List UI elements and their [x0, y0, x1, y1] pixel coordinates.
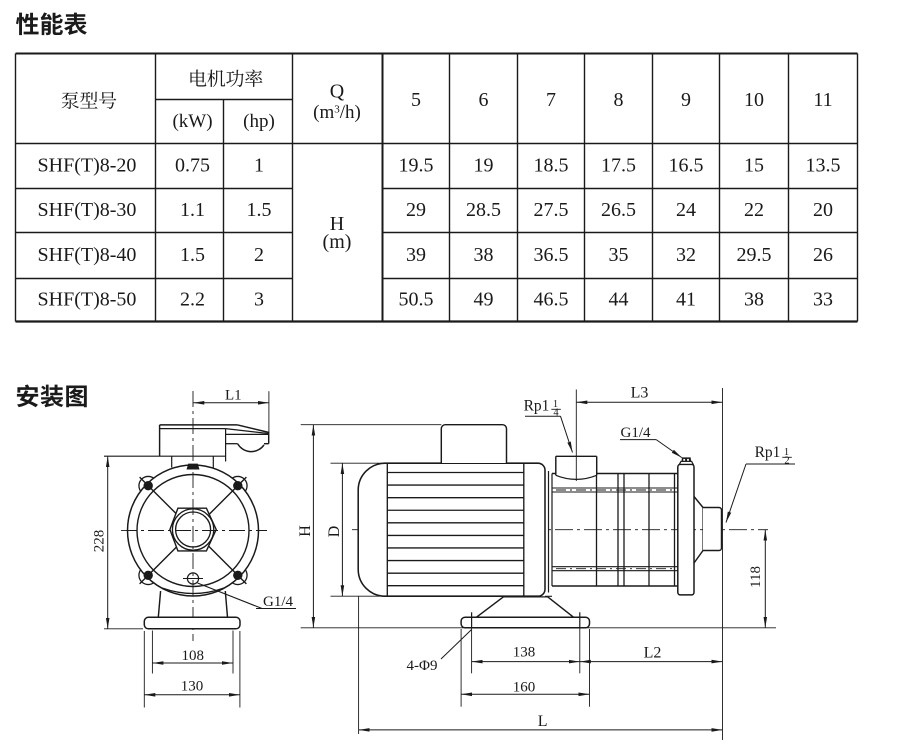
svg-text:36.5: 36.5: [534, 244, 569, 266]
svg-text:SHF(T)8-40: SHF(T)8-40: [38, 244, 137, 266]
svg-text:16.5: 16.5: [669, 155, 704, 177]
svg-text:35: 35: [609, 244, 629, 266]
svg-text:2.2: 2.2: [180, 289, 205, 311]
svg-text:15: 15: [744, 155, 764, 177]
svg-text:41: 41: [676, 289, 696, 311]
svg-text:L1: L1: [225, 388, 242, 404]
svg-text:L3: L3: [631, 385, 649, 402]
svg-text:38: 38: [744, 289, 764, 311]
svg-text:G1/4: G1/4: [263, 594, 294, 610]
svg-text:13.5: 13.5: [806, 155, 841, 177]
svg-text:(kW): (kW): [172, 111, 212, 132]
svg-text:50.5: 50.5: [399, 289, 434, 311]
svg-text:SHF(T)8-30: SHF(T)8-30: [38, 199, 137, 221]
svg-text:28.5: 28.5: [466, 199, 501, 221]
svg-text:(hp): (hp): [243, 111, 275, 132]
svg-text:H: H: [297, 525, 314, 537]
svg-text:G1/4: G1/4: [621, 425, 652, 441]
svg-text:SHF(T)8-20: SHF(T)8-20: [38, 155, 137, 177]
svg-text:(m): (m): [323, 231, 352, 253]
svg-text:49: 49: [474, 289, 494, 311]
svg-text:44: 44: [609, 289, 629, 311]
svg-text:130: 130: [181, 679, 204, 695]
svg-text:3: 3: [254, 289, 264, 311]
svg-text:6: 6: [479, 89, 489, 111]
svg-text:138: 138: [513, 645, 536, 661]
svg-text:L: L: [538, 713, 548, 730]
svg-text:46.5: 46.5: [534, 289, 569, 311]
svg-text:Rp1: Rp1: [755, 444, 781, 461]
svg-text:29.5: 29.5: [737, 244, 772, 266]
svg-text:19: 19: [474, 155, 494, 177]
svg-text:38: 38: [474, 244, 494, 266]
svg-text:D: D: [326, 526, 343, 538]
svg-text:29: 29: [406, 199, 426, 221]
svg-text:1.1: 1.1: [180, 199, 205, 221]
svg-text:33: 33: [813, 289, 833, 311]
svg-text:26.5: 26.5: [601, 199, 636, 221]
svg-text:2: 2: [254, 244, 264, 266]
svg-text:1.5: 1.5: [247, 199, 272, 221]
svg-text:17.5: 17.5: [601, 155, 636, 177]
svg-text:8: 8: [614, 89, 624, 111]
svg-text:108: 108: [181, 648, 204, 664]
svg-text:4-Φ9: 4-Φ9: [407, 658, 438, 674]
svg-text:24: 24: [676, 199, 696, 221]
svg-text:1: 1: [254, 155, 264, 177]
svg-text:9: 9: [681, 89, 691, 111]
svg-text:160: 160: [513, 680, 536, 696]
svg-text:27.5: 27.5: [534, 199, 569, 221]
svg-text:1.5: 1.5: [180, 244, 205, 266]
svg-text:19.5: 19.5: [399, 155, 434, 177]
svg-text:18.5: 18.5: [534, 155, 569, 177]
svg-text:0.75: 0.75: [175, 155, 210, 177]
svg-text:228: 228: [92, 530, 108, 553]
svg-text:20: 20: [813, 199, 833, 221]
svg-text:22: 22: [744, 199, 764, 221]
svg-text:Q: Q: [330, 81, 345, 103]
svg-text:5: 5: [411, 89, 421, 111]
svg-text:32: 32: [676, 244, 696, 266]
svg-text:26: 26: [813, 244, 833, 266]
svg-text:SHF(T)8-50: SHF(T)8-50: [38, 289, 137, 311]
svg-text:Rp1: Rp1: [524, 398, 550, 415]
svg-text:11: 11: [813, 89, 832, 111]
svg-text:39: 39: [406, 244, 426, 266]
svg-text:L2: L2: [644, 645, 662, 662]
svg-text:7: 7: [546, 89, 556, 111]
svg-text:10: 10: [744, 89, 764, 111]
svg-text:118: 118: [748, 566, 764, 588]
